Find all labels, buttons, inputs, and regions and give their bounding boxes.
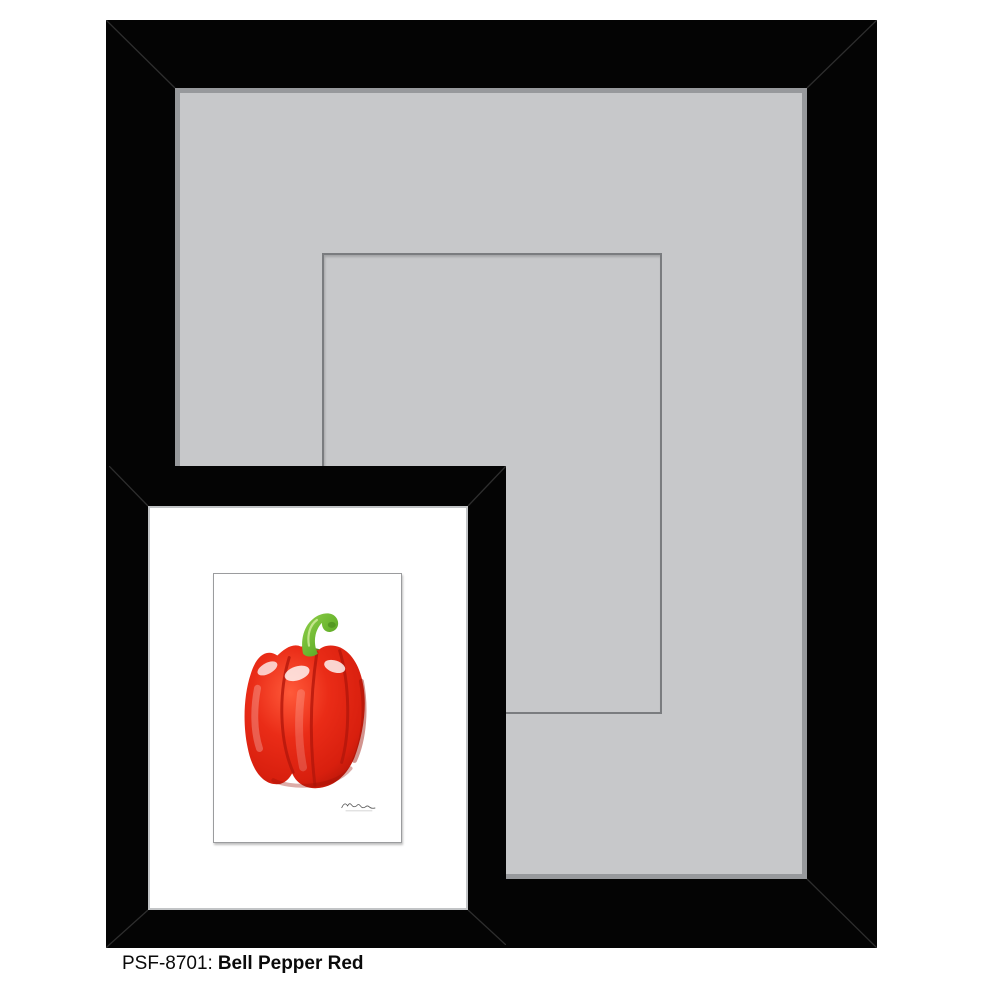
product-preview: PSF-8701:Bell Pepper Red	[0, 0, 984, 984]
caption: PSF-8701:Bell Pepper Red	[122, 952, 364, 976]
pepper-body	[245, 645, 365, 788]
bell-pepper-illustration	[214, 574, 401, 842]
caption-title: Bell Pepper Red	[218, 953, 364, 974]
caption-sku: PSF-8701:	[122, 953, 213, 974]
artwork-print	[213, 573, 402, 843]
artist-signature	[342, 804, 376, 811]
